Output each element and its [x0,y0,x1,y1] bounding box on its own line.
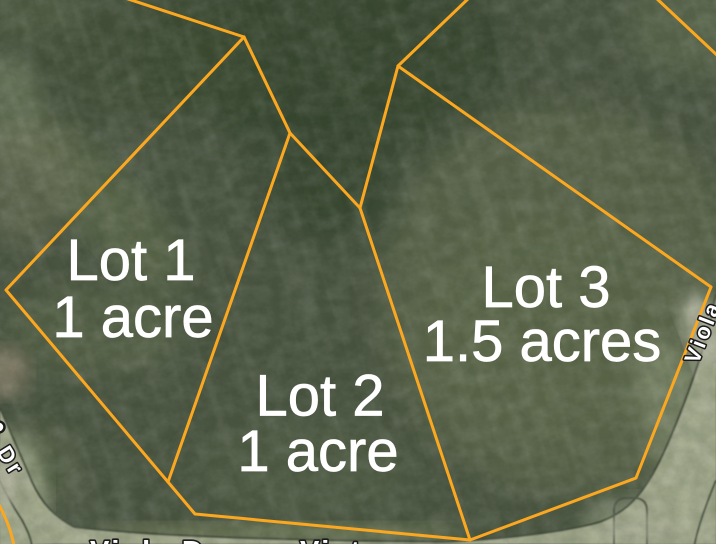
svg-text:Lot 1: Lot 1 [67,228,196,293]
svg-text:1.5 acres: 1.5 acres [423,309,662,374]
svg-text:1 acre: 1 acre [237,419,398,484]
svg-text:1 acre: 1 acre [52,285,213,350]
svg-text:Viola Downs Vista: Viola Downs Vista [90,536,381,544]
